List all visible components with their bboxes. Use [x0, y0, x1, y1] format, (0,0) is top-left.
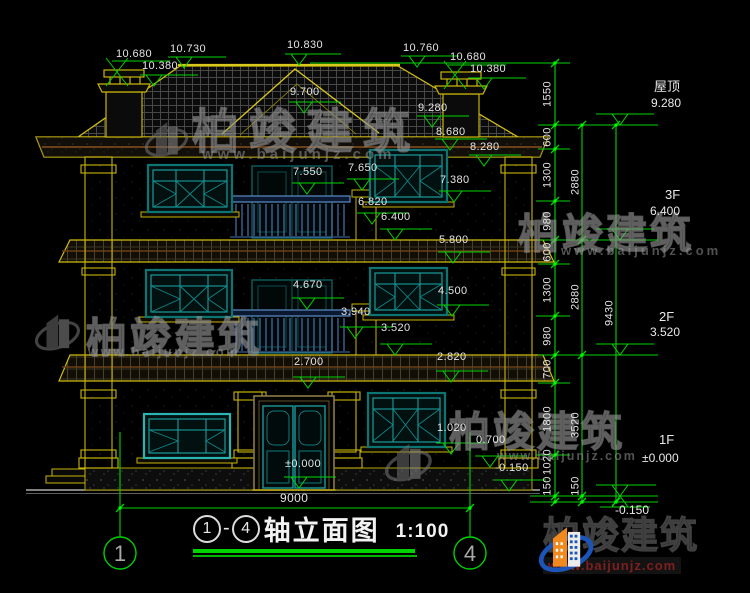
title-underline: [193, 555, 417, 557]
chain-mid-dim: 2880: [571, 284, 582, 310]
chain-inner-dim: 600: [543, 127, 554, 147]
width-dim: 9000: [280, 492, 308, 504]
elev-label: 7.380: [440, 175, 470, 186]
level-2f-elevation: 3.520: [650, 326, 680, 338]
cad-elevation-drawing: 柏竣建筑 www.baijunjz.com 柏竣建筑 www.baijunjz.…: [0, 0, 750, 593]
level-ground-elevation: -0.150: [615, 504, 649, 516]
watermark-url: www.baijunjz.com: [88, 344, 240, 359]
level-3f-label: 3F: [665, 188, 680, 201]
top-dim: 10.830: [287, 40, 323, 51]
watermark-url: www.baijunjz.com: [202, 146, 395, 163]
chain-inner-dim: 1300: [543, 277, 554, 303]
balcony-railing-3f: [230, 196, 350, 237]
window-3f-left: [141, 165, 239, 217]
elev-label: ±0.000: [285, 459, 321, 470]
elev-label: 7.650: [348, 163, 378, 174]
top-dim: 10.680: [450, 52, 486, 63]
elev-label: 0.700: [476, 435, 506, 446]
entrance-door: [252, 396, 336, 490]
level-roof-elevation: 9.280: [651, 97, 681, 109]
chain-inner-dim: 980: [543, 326, 554, 346]
title-scale: 1:100: [396, 515, 450, 543]
elev-label: -0.150: [495, 463, 529, 474]
title-axis-start-bubble: 1: [193, 515, 221, 543]
top-dim: 10.680: [116, 49, 152, 60]
title-dash: -: [223, 517, 230, 540]
chain-mid-dim: 3520: [571, 412, 582, 438]
elev-label: 2.820: [437, 352, 467, 363]
chain-inner-dim: 1800: [543, 406, 554, 432]
chain-inner-dim: 1020: [543, 449, 554, 475]
elev-label: 1.020: [437, 423, 467, 434]
elev-label: 5.800: [439, 235, 469, 246]
chain-inner-dim: 1300: [543, 162, 554, 188]
elev-label: 9.700: [290, 87, 320, 98]
top-dim: 10.760: [403, 43, 439, 54]
elev-label: 2.700: [294, 357, 324, 368]
floor-band-3f: [59, 240, 554, 262]
top-dim: 10.380: [142, 61, 178, 72]
level-1f-label: 1F: [659, 433, 674, 446]
chain-mid-dim: 150: [571, 476, 582, 496]
title-axis-end-bubble: 4: [232, 515, 260, 543]
elev-label: 9.280: [418, 103, 448, 114]
elev-label: 4.500: [438, 286, 468, 297]
level-roof-label: 屋顶: [654, 80, 680, 93]
watermark-logo-icon: [144, 112, 192, 164]
level-1f-elevation: ±0.000: [642, 452, 679, 464]
elev-label: 6.400: [381, 212, 411, 223]
watermark-logo-icon: [384, 434, 436, 488]
level-3f-elevation: 6.400: [650, 205, 680, 217]
axis-bubble-4: 4: [464, 541, 476, 567]
roof-tower-left: [98, 70, 150, 137]
chain-inner-dim: 1550: [543, 81, 554, 107]
chain-inner-dim: 600: [543, 242, 554, 262]
title-text: 轴立面图: [264, 509, 380, 548]
elev-label: 3.520: [381, 323, 411, 334]
chain-inner-dim: 980: [543, 211, 554, 231]
level-2f-label: 2F: [659, 310, 674, 323]
top-dim: 10.380: [470, 64, 506, 75]
chain-inner-dim: 150: [543, 476, 554, 496]
elev-label: 4.670: [293, 280, 323, 291]
elev-label: 7.550: [293, 167, 323, 178]
axis-bubble-1: 1: [114, 541, 126, 567]
watermark-url: www.baijunjz.com: [561, 243, 721, 258]
elev-label: 6.820: [358, 197, 388, 208]
title-underline: [193, 549, 415, 553]
drawing-title: 1 - 4 轴立面图 1:100: [193, 509, 449, 548]
company-logo-icon: [537, 516, 599, 576]
chain-inner-dim: 700: [543, 359, 554, 379]
chain-mid-dim: 2880: [571, 169, 582, 195]
top-dim: 10.730: [170, 44, 206, 55]
watermark-url: www.baijunjz.com: [497, 449, 637, 463]
elev-label: 3.940: [341, 307, 371, 318]
elev-label: 8.680: [436, 127, 466, 138]
company-logo: 柏竣建筑 www.baijunjz.com: [537, 516, 699, 575]
chain-outer-dim: 9430: [605, 300, 616, 326]
window-1f-left: [137, 414, 237, 463]
elev-label: 8.280: [470, 142, 500, 153]
watermark-logo-icon: [34, 302, 84, 360]
